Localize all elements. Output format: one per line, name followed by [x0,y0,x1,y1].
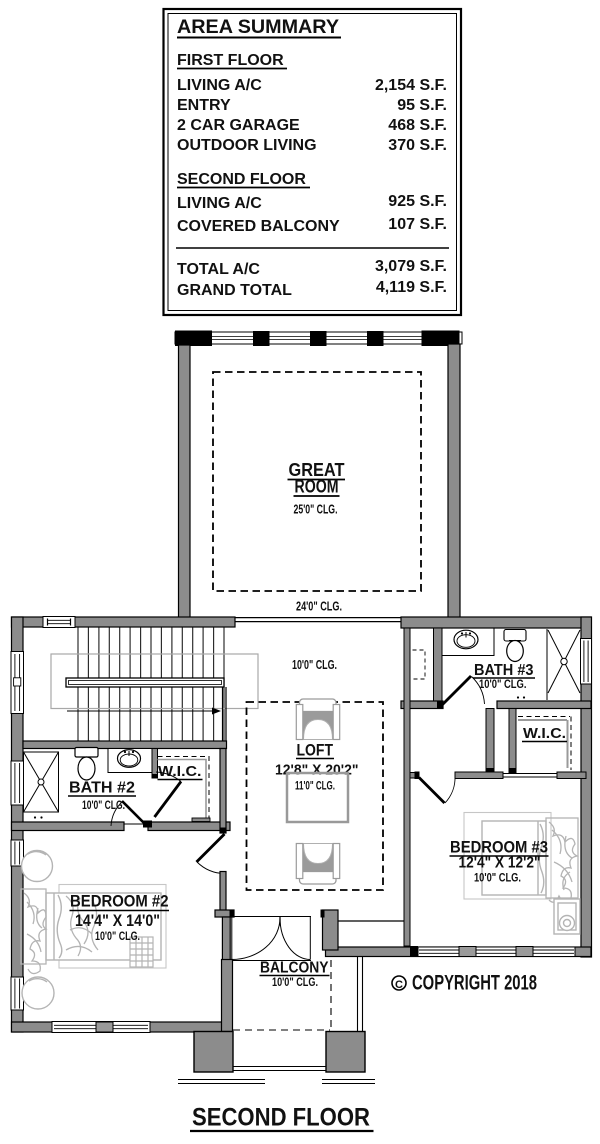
svg-text:W.I.C.: W.I.C. [523,726,566,742]
svg-text:10'0" CLG.: 10'0" CLG. [95,931,140,943]
svg-text:10'0" CLG.: 10'0" CLG. [82,800,125,812]
svg-text:925 S.F.: 925 S.F. [388,193,447,210]
svg-text:SECOND FLOOR: SECOND FLOOR [192,1104,370,1132]
svg-text:11'0" CLG.: 11'0" CLG. [295,781,335,793]
svg-text:107 S.F.: 107 S.F. [388,216,447,233]
svg-text:10'0" CLG.: 10'0" CLG. [272,977,318,989]
svg-text:COPYRIGHT 2018: COPYRIGHT 2018 [412,971,537,995]
svg-text:W.I.C.: W.I.C. [158,764,202,780]
svg-text:10'0" CLG.: 10'0" CLG. [292,658,337,672]
svg-text:LIVING A/C: LIVING A/C [177,77,262,94]
svg-text:BATH #3: BATH #3 [474,662,534,679]
svg-text:468 S.F.: 468 S.F. [388,117,447,134]
svg-text:OUTDOOR LIVING: OUTDOOR LIVING [177,137,317,154]
svg-text:BALCONY: BALCONY [260,960,329,977]
svg-text:BEDROOM #2: BEDROOM #2 [70,892,169,911]
svg-text:COVERED BALCONY: COVERED BALCONY [177,218,340,235]
svg-text:10'0" CLG.: 10'0" CLG. [474,873,521,885]
svg-text:95 S.F.: 95 S.F. [397,97,447,114]
svg-text:GRAND TOTAL: GRAND TOTAL [177,282,292,299]
svg-text:C: C [395,979,403,991]
svg-text:LOFT: LOFT [297,742,334,760]
svg-text:12'4" X 12'2": 12'4" X 12'2" [459,855,541,872]
svg-text:2,154 S.F.: 2,154 S.F. [375,77,447,94]
svg-text:ROOM: ROOM [295,477,339,497]
svg-text:AREA SUMMARY: AREA SUMMARY [177,16,339,38]
svg-text:FIRST FLOOR: FIRST FLOOR [177,52,284,69]
svg-text:BATH #2: BATH #2 [69,780,135,797]
svg-text:10'0" CLG.: 10'0" CLG. [479,679,527,691]
svg-text:4,119 S.F.: 4,119 S.F. [376,279,447,296]
svg-text:14'4" X 14'0": 14'4" X 14'0" [75,911,160,930]
svg-text:2 CAR GARAGE: 2 CAR GARAGE [177,117,300,134]
svg-text:LIVING A/C: LIVING A/C [177,195,262,212]
svg-text:SECOND FLOOR: SECOND FLOOR [177,171,306,188]
svg-text:3,079 S.F.: 3,079 S.F. [375,258,447,275]
svg-text:370 S.F.: 370 S.F. [388,137,447,154]
svg-text:25'0" CLG.: 25'0" CLG. [294,503,338,517]
svg-text:TOTAL A/C: TOTAL A/C [177,261,260,278]
svg-text:24'0" CLG.: 24'0" CLG. [296,600,342,614]
svg-text:ENTRY: ENTRY [177,97,231,114]
